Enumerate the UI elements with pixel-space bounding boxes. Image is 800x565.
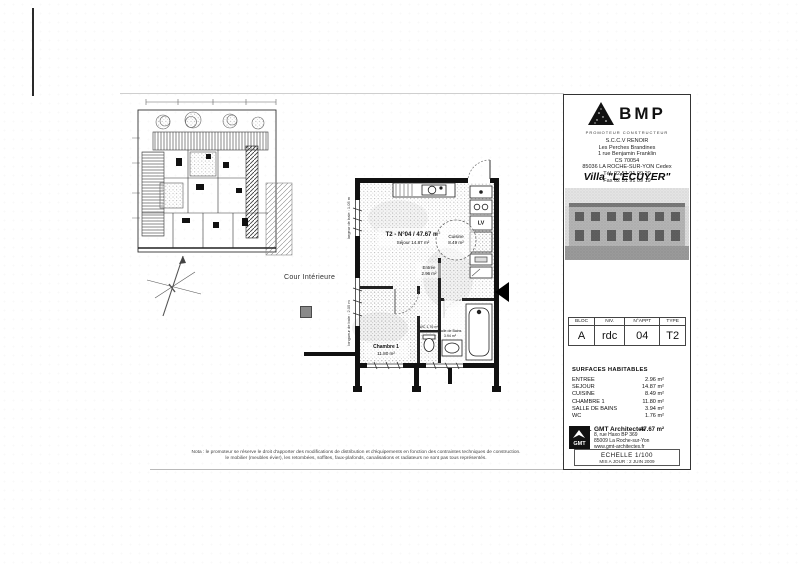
scale-value: ECHELLE 1/100 [601,452,653,459]
sejour-label: Séjour 14.87 m² [397,240,430,245]
kitchen-counter [393,183,455,197]
chambre-area: 11.80 m² [377,351,395,356]
title-block: BMP PROMOTEUR CONSTRUCTEUR S.C.C.V RENOI… [563,94,691,470]
address-line: 85036 LA ROCHE-SUR-YON Cedex [564,164,690,171]
site-plan-linework [132,99,292,255]
value-bloc: A [569,326,595,346]
drawing-sheet: Cour Intérieure [0,0,800,565]
bmp-pyramid-icon [588,101,614,127]
unit-info-header-row: BLOC NIV. N°APPT TYPE [569,318,686,326]
entree-area: 2.96 m² [422,271,437,276]
surface-value: 2.96 m² [645,377,664,384]
gmt-logo-icon: GMT [569,426,590,449]
unit-info-value-row: A rdc 04 T2 [569,326,686,346]
surface-row: WC 1.76 m² [572,413,664,420]
surface-row: CUISINE 8.49 m² [572,391,664,398]
dishwasher-label: LV [478,221,485,227]
header-niveau: NIV. [595,318,625,326]
surface-row: SEJOUR 14.87 m² [572,384,664,391]
left-dimension-bottom: longueur de baie : 2.05 m [346,300,351,346]
unit-label: T2 - N°04 / 47.67 m² [386,231,441,238]
sheet-bottom-rule [150,469,564,470]
address-line: S.C.C.V RENOIR [564,138,690,145]
bmp-logo: BMP [564,101,690,127]
architect-block: GMT GMT Architectes 8, rue Haxo BP 369 8… [569,426,649,450]
left-dimension-top: largeur de baie : 1.05 m [346,196,351,239]
scale-box: ECHELLE 1/100 MIS A JOUR : 2 JUIN 2009 [574,449,680,466]
disclaimer-line-2: le mobilier (meubles évier), les retombé… [150,456,562,462]
surface-row: CHAMBRE 1 11.80 m² [572,399,664,406]
header-type: TYPE [660,318,686,326]
address-line: CS 70054 [564,158,690,165]
bmp-logo-text: BMP [619,104,666,124]
sdb-label: Salle de Bains [439,329,462,333]
building-photo [565,188,689,260]
surface-row: ENTREE 2.96 m² [572,377,664,384]
value-niveau: rdc [595,326,625,346]
entry-door [468,160,490,179]
site-key-plan [118,88,300,270]
cuisine-area: 8.49 m² [448,240,464,245]
surface-value: 8.49 m² [645,391,664,398]
surfaces-list: ENTREE 2.96 m² SEJOUR 14.87 m² CUISINE 8… [572,377,664,420]
updated-date: MIS A JOUR : 2 JUIN 2009 [599,459,654,464]
address-line: 1 rue Benjamin Franklin [564,151,690,158]
surface-value: 11.80 m² [642,399,664,406]
surface-label: SEJOUR [572,384,595,391]
project-title: Villa "L'ECUYER" [564,171,690,183]
wc-label: WC 1.76 m² [419,325,439,329]
architect-details: GMT Architectes 8, rue Haxo BP 369 85009… [594,426,649,450]
surface-label: WC [572,413,581,420]
surface-label: ENTREE [572,377,595,384]
surfaces-title: SURFACES HABITABLES [572,367,648,373]
surface-label: CHAMBRE 1 [572,399,605,406]
apartment-floor-plan: LV [298,158,513,398]
value-type: T2 [660,326,686,346]
header-bloc: BLOC [569,318,595,326]
bmp-logo-tagline: PROMOTEUR CONSTRUCTEUR [564,130,690,135]
disclaimer-line-1: Nota : le promoteur se réserve le droit … [150,450,562,456]
surface-value: 3.94 m² [645,406,664,413]
gmt-logo-text: GMT [573,441,586,447]
value-nappt: 04 [625,326,660,346]
disclaimer: Nota : le promoteur se réserve le droit … [150,450,562,462]
surface-value: 1.76 m² [645,413,664,420]
unit-info-table: BLOC NIV. N°APPT TYPE A rdc 04 T2 [568,317,686,346]
surface-row: SALLE DE BAINS 3.94 m² [572,406,664,413]
sdb-area: 3.94 m² [444,334,457,338]
address-line: Les Perches Brandines [564,145,690,152]
surface-label: CUISINE [572,391,595,398]
surface-label: SALLE DE BAINS [572,406,617,413]
north-compass-icon [135,250,215,322]
surface-value: 14.87 m² [642,384,664,391]
sheet-edge-mark [32,8,34,96]
header-nappt: N°APPT [625,318,660,326]
chambre-label: Chambre 1 [373,344,399,350]
cuisine-label: Cuisine [448,234,464,239]
entree-label: Entrée [423,265,436,270]
